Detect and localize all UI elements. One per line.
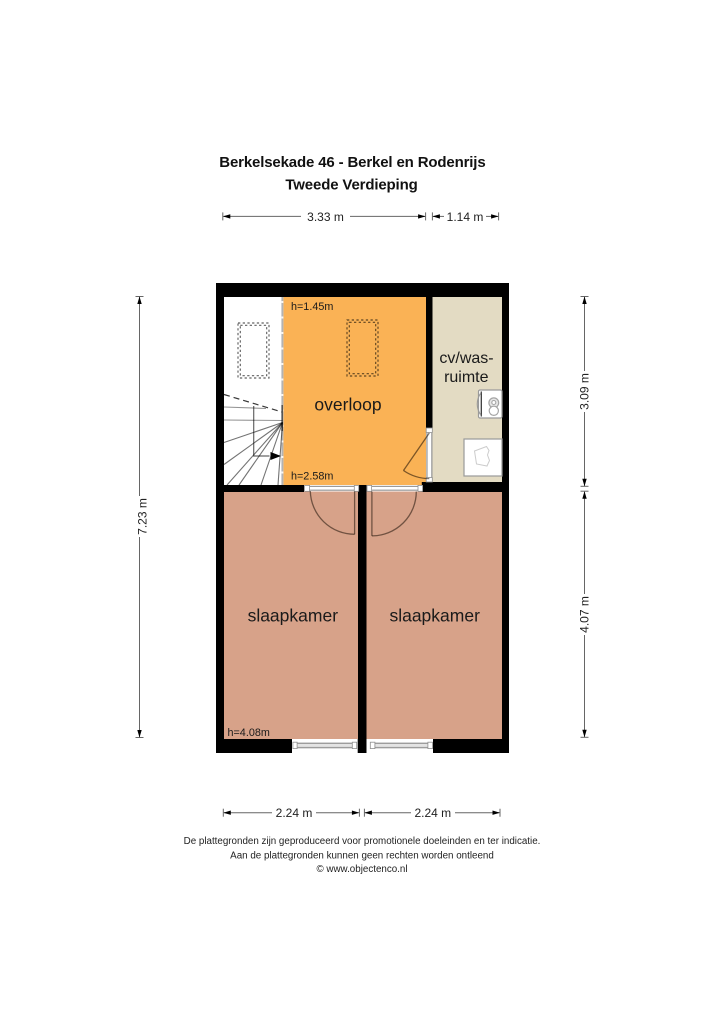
svg-text:h=4.08m: h=4.08m [228,727,270,739]
svg-text:De plattegronden zijn geproduc: De plattegronden zijn geproduceerd voor … [184,836,541,847]
svg-text:Aan de plattegronden kunnen ge: Aan de plattegronden kunnen geen rechten… [230,850,494,861]
svg-text:2.24 m: 2.24 m [414,806,451,820]
svg-text:1.14 m: 1.14 m [447,210,484,224]
svg-text:Tweede Verdieping: Tweede Verdieping [285,176,417,193]
svg-text:ruimte: ruimte [444,369,489,386]
svg-text:Berkelsekade 46 - Berkel en Ro: Berkelsekade 46 - Berkel en Rodenrijs [219,154,485,171]
svg-text:© www.objectenco.nl: © www.objectenco.nl [316,864,407,875]
svg-text:overloop: overloop [314,395,381,415]
svg-text:4.07 m: 4.07 m [578,596,592,633]
svg-text:7.23 m: 7.23 m [135,498,149,535]
svg-text:3.09 m: 3.09 m [578,373,592,410]
svg-text:slaapkamer: slaapkamer [389,606,480,626]
svg-text:h=2.58m: h=2.58m [291,471,333,483]
svg-text:3.33 m: 3.33 m [307,210,344,224]
svg-text:2.24 m: 2.24 m [276,806,313,820]
svg-text:slaapkamer: slaapkamer [248,606,339,626]
svg-text:h=1.45m: h=1.45m [291,301,333,313]
svg-text:cv/was-: cv/was- [439,350,493,367]
